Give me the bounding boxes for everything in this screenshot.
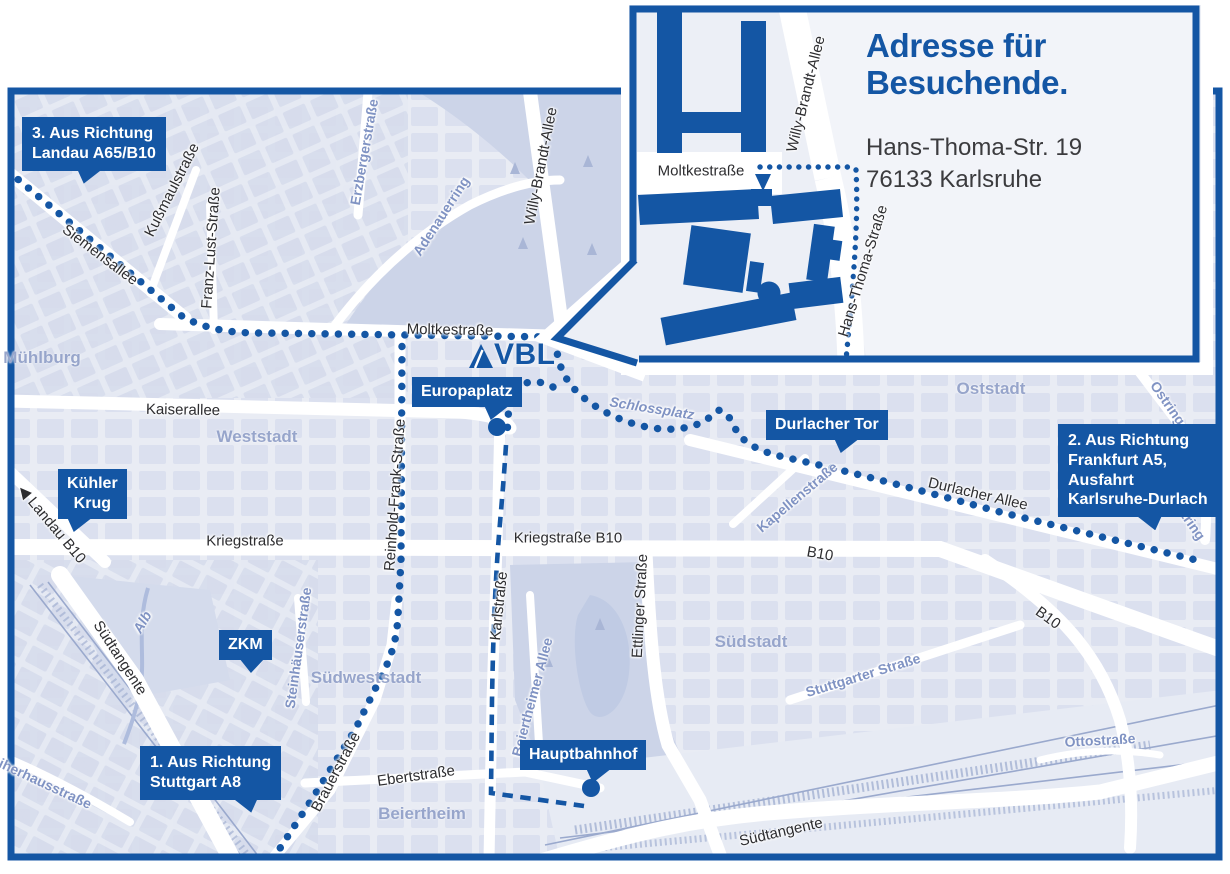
badge-hauptbahnhof: Hauptbahnhof [520,740,646,770]
district-label-muehlburg: Mühlburg [3,348,80,368]
street-label-brauerstrasse: Brauerstraße [308,729,364,814]
street-label-schlossplatz: Schlossplatz [608,393,695,422]
address-street: Hans-Thoma-Str. 19 [866,132,1196,164]
pointer-tail [586,768,612,783]
inset-text-panel: Adresse für Besuchende. Hans-Thoma-Str. … [866,28,1196,196]
label-line: 2. Aus Richtung [1068,431,1208,451]
address-city: 76133 Karlsruhe [866,164,1196,196]
street-label-kriegstrasse: Kriegstraße [206,533,284,550]
street-label-b10: B10 [805,543,834,564]
vbl-logo: VBL [468,340,556,370]
inset-street-label-willy-brandt-allee: Willy-Brandt-Allee [783,34,828,154]
street-label-ottostrasse: Ottostraße [1064,730,1136,750]
street-label-erzbergerstrasse: Erzbergerstraße [347,98,381,207]
direction-label-dir-2: 2. Aus RichtungFrankfurt A5,AusfahrtKarl… [1058,424,1218,517]
street-label-kapellenstrasse: Kapellenstraße [753,459,840,536]
pointer-tail [232,798,258,813]
street-label-ettlinger-strasse: Ettlinger Straße [629,554,651,659]
label-line: 1. Aus Richtung [150,753,271,773]
label-line: 3. Aus Richtung [32,124,156,144]
inset-title-line2: Besuchende. [866,65,1196,102]
pointer-tail [239,658,265,673]
district-label-beiertheim: Beiertheim [378,804,466,824]
street-label-franz-lust-strasse: Franz-Lust-Straße [198,187,223,310]
label-line: Europaplatz [421,382,513,402]
vbl-logo-text: VBL [494,340,556,370]
pointer-tail [484,405,510,420]
street-label-alb: Alb [129,608,154,636]
pointer-tail [1136,515,1162,530]
pointer-tail [67,517,93,532]
label-line: Ausfahrt [1068,471,1208,491]
karlsruhe-directions-map: SiemensalleeKußmaulstraßeFranz-Lust-Stra… [0,0,1230,874]
district-label-oststadt: Oststadt [957,379,1026,399]
label-line: Durlacher Tor [775,415,879,435]
pointer-tail [834,438,860,453]
label-line: Landau A65/B10 [32,144,156,164]
street-label-stuttgarter-strasse: Stuttgarter Straße [804,650,923,700]
badge-kuehler-krug: KühlerKrug [58,469,127,519]
label-line: Hauptbahnhof [529,745,637,765]
street-label-moltkestrasse: Moltkestraße [407,321,494,340]
street-label-karlstrasse: Karlstraße [487,571,511,642]
inset-street-label-hans-thoma-strasse: Hans-Thoma-Straße [835,203,891,339]
street-label-steinhaeuserstrasse: Steinhäuserstraße [282,586,315,709]
label-line: Kühler [67,474,118,494]
street-label-ostring: Ostring [1147,378,1189,428]
badge-zkm: ZKM [219,630,272,660]
street-label-siemensallee: Siemensallee [59,221,141,289]
street-label-kriegstrasse-b10: Kriegstraße B10 [514,530,622,547]
street-label-ebertstrasse: Ebertstraße [376,762,456,790]
district-label-suedweststadt: Südweststadt [311,668,422,688]
direction-label-dir-3: 3. Aus RichtungLandau A65/B10 [22,117,166,171]
street-label-willy-brandt-allee: Willy-Brandt-Allee [521,106,560,226]
label-line: Frankfurt A5, [1068,451,1208,471]
inset-title: Adresse für Besuchende. [866,28,1196,102]
street-label-adenauerring: Adenauerring [410,173,473,258]
district-label-suedstadt: Südstadt [715,632,788,652]
label-line: ZKM [228,635,263,655]
street-label-b10: B10 [1032,603,1064,632]
vbl-logo-triangle-icon [468,342,494,370]
visitor-address: Hans-Thoma-Str. 19 76133 Karlsruhe [866,132,1196,196]
label-line: Karlsruhe-Durlach [1068,490,1208,510]
badge-durlacher-tor: Durlacher Tor [766,410,888,440]
district-label-weststadt: Weststadt [217,427,298,447]
street-label-weiherhausstrasse: Weiherhausstraße [0,746,94,812]
street-label-reinhold-frank-strasse: Reinhold-Frank-Straße [381,418,409,571]
direction-label-dir-1: 1. Aus RichtungStuttgart A8 [140,746,281,800]
inset-title-line1: Adresse für [866,28,1196,65]
street-label-suedtangente: Südtangente [738,814,825,850]
label-line: Krug [67,494,118,514]
inset-street-label-moltkestrasse: Moltkestraße [658,163,745,180]
street-label-durlacher-allee: Durlacher Allee [927,474,1030,513]
pointer-tail [77,169,103,184]
badge-europaplatz: Europaplatz [412,377,522,407]
label-line: Stuttgart A8 [150,773,271,793]
street-label-kaiserallee: Kaiserallee [146,401,221,419]
